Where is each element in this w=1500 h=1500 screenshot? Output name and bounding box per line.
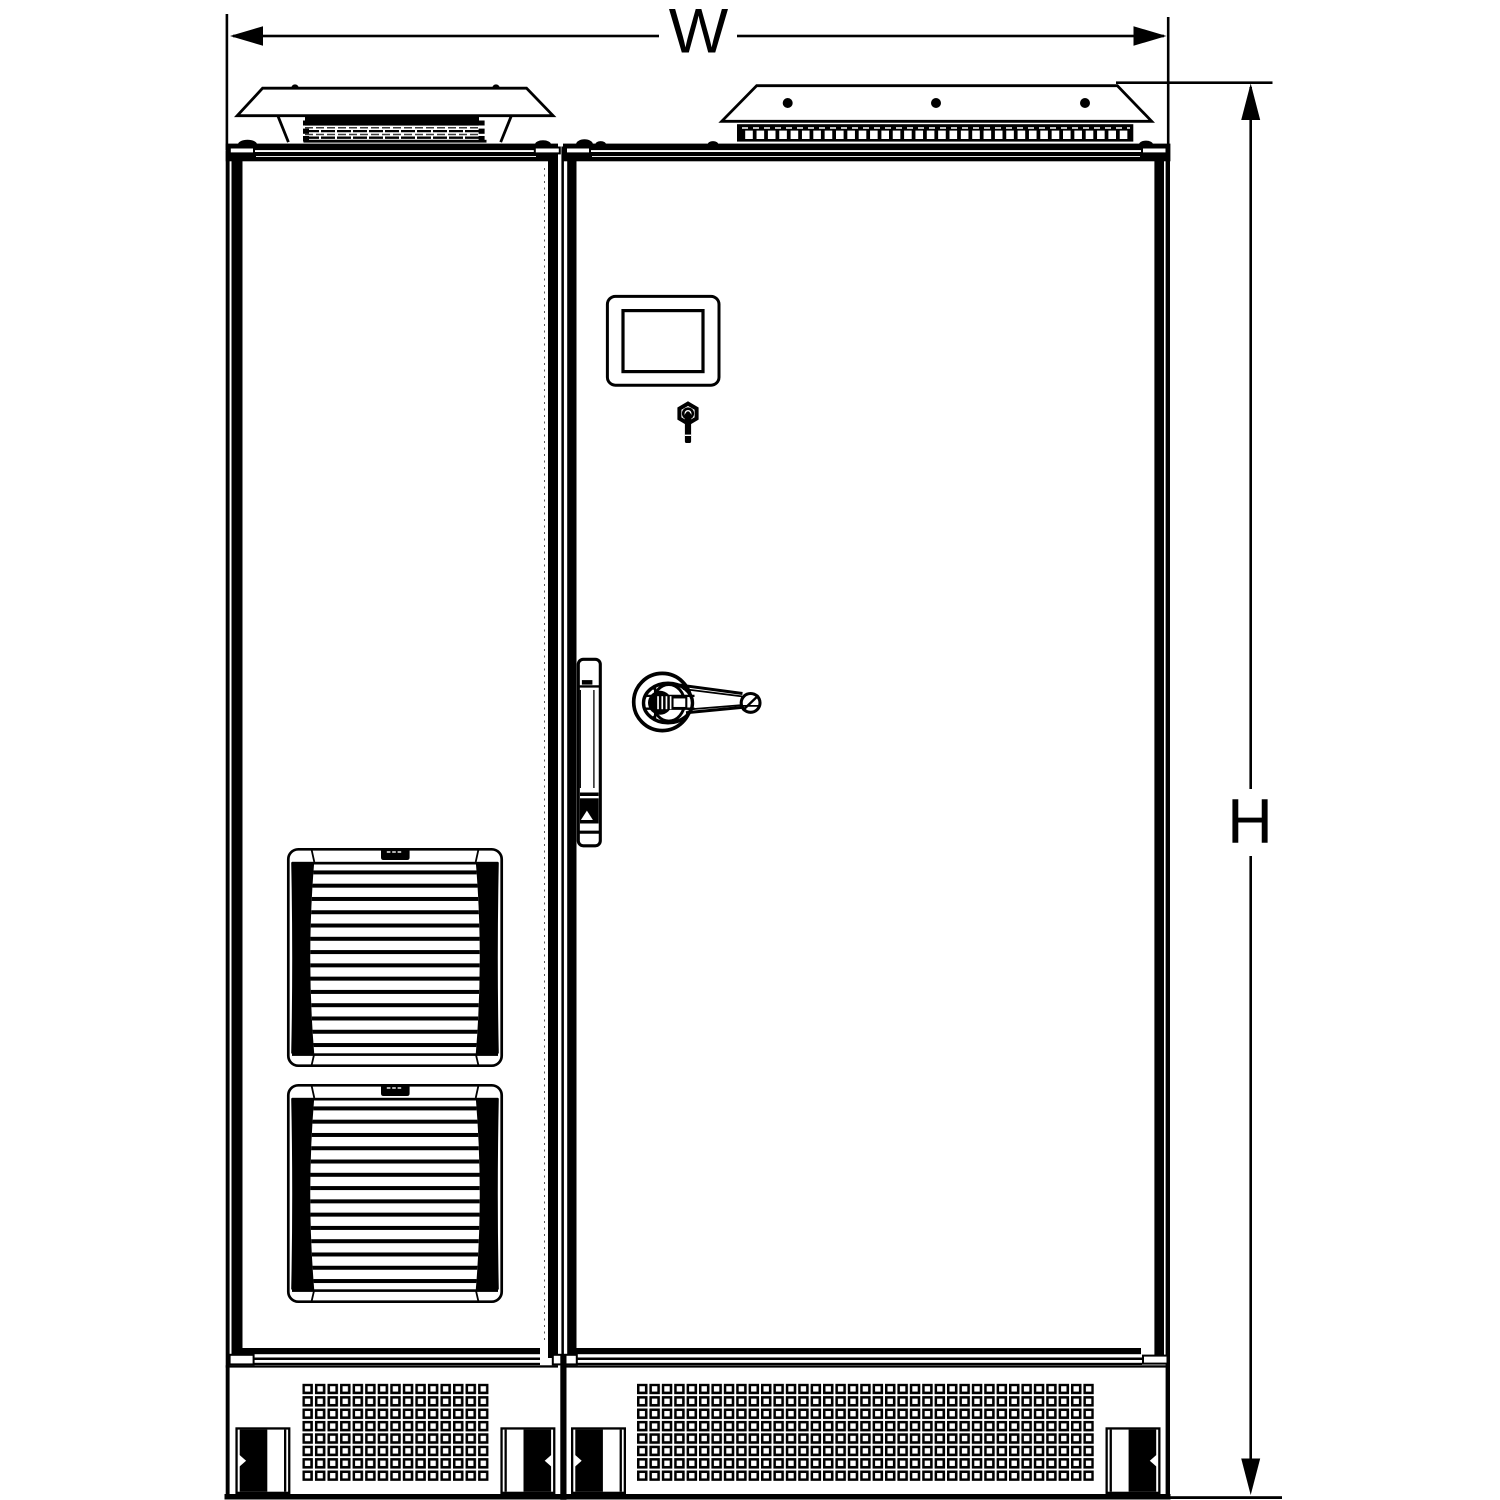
svg-text:W: W (669, 0, 729, 67)
svg-text:H: H (1227, 787, 1273, 857)
